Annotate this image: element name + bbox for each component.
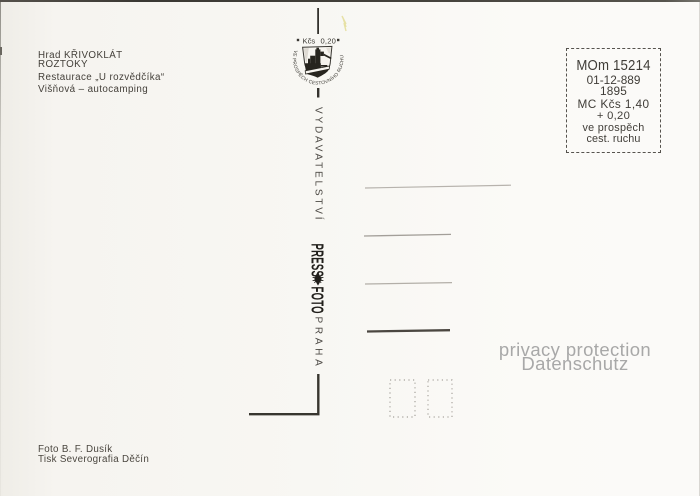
svg-text:PRAHA: PRAHA (312, 317, 323, 370)
svg-text:FOTO: FOTO (307, 287, 327, 314)
svg-text:0,20: 0,20 (321, 37, 337, 46)
svg-text:Kčs: Kčs (303, 37, 316, 46)
svg-text:VYDAVATELSTVÍ: VYDAVATELSTVÍ (312, 107, 325, 222)
svg-text:PRESS: PRESS (307, 244, 327, 278)
